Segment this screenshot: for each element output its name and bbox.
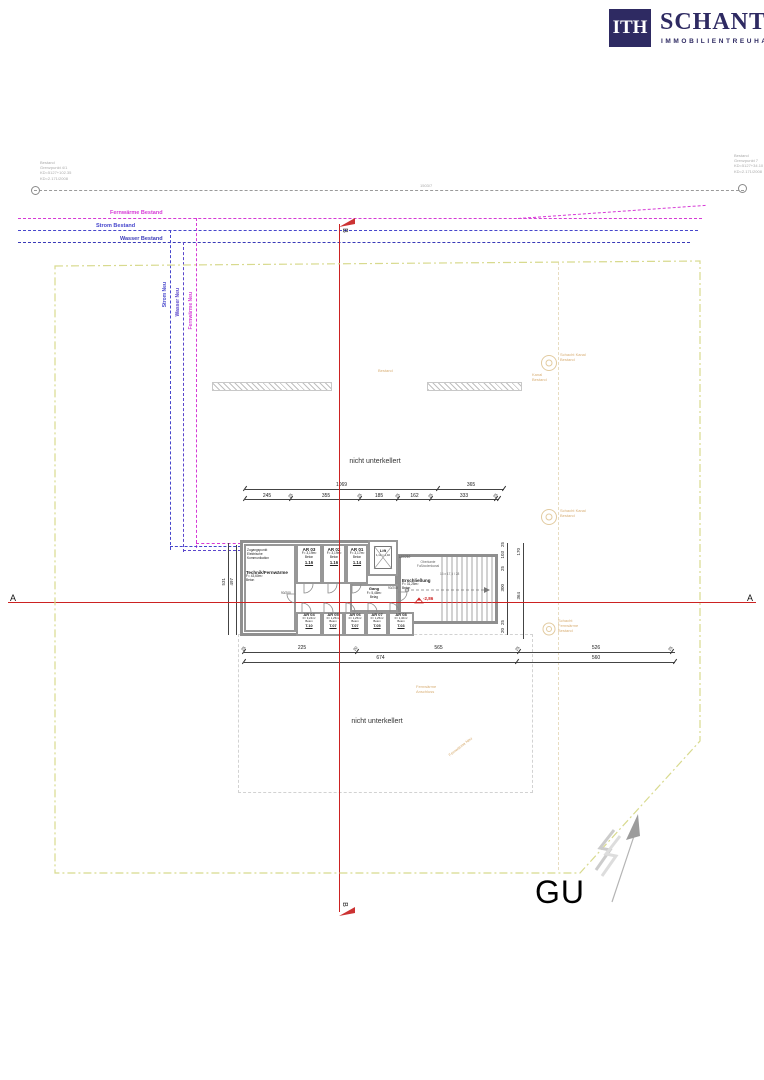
- fernwaerme-bestand-label: Fernwärme Bestand: [110, 210, 163, 216]
- survey-note-left-line: KD=5127+102.35: [40, 170, 71, 175]
- section-label-a-left: A: [10, 593, 16, 603]
- faint-line: Bestand: [558, 628, 578, 633]
- fernwaerme-bestand-branch-line: [518, 205, 706, 219]
- survey-note-right: Bestand Grenzpunkt 7 KD=5127+34.10 KD=2.…: [734, 153, 763, 174]
- faint-note-schacht-2: Schacht Kanal Bestand: [560, 508, 586, 518]
- section-line-b: [339, 224, 340, 912]
- strom-neu-line: [170, 230, 171, 550]
- room-label-technik: Technik/Fernwärme F= 43,60m² Beton: [246, 570, 288, 583]
- dim-line: [245, 499, 499, 500]
- logo-ith-mark: ITH: [609, 9, 651, 47]
- survey-point-right-icon: [738, 184, 747, 193]
- manhole-icon: [546, 360, 552, 366]
- dim-line: [507, 543, 508, 635]
- manhole-icon: [547, 627, 552, 632]
- dim-label: 25: [500, 620, 505, 625]
- faint-line: Bestand: [560, 513, 586, 518]
- room-material: Beton: [402, 587, 431, 591]
- fernwaerme-bestand-line: [18, 218, 702, 219]
- section-flag-top: [339, 218, 355, 227]
- room-label-ar05: AR 05 F= 1,25m² Beton T.07: [322, 613, 344, 628]
- room-unit: 1.14: [346, 560, 368, 565]
- dim-line: [228, 543, 229, 635]
- room-label-ar02: AR 02 F= 3,19m² Beton 1.16: [322, 547, 346, 565]
- dim-label: 185: [362, 493, 396, 499]
- manhole-icon: [542, 510, 557, 525]
- room-unit: T.07: [344, 624, 366, 628]
- fernwaerme-neu-label: Fernwärme Neu: [188, 292, 194, 330]
- dim-label: 565: [360, 645, 517, 651]
- dim-line: [236, 545, 237, 635]
- room-label-ar01: AR 01 F= 3,17m² Beton 1.14: [346, 547, 368, 565]
- lift-dims: 1,10 × 1,40: [368, 554, 398, 557]
- dim-label: 25: [500, 542, 505, 547]
- room-label-ar06: AR 06 F= 1,25m² Beton T.07: [344, 613, 366, 628]
- section-label-b-bottom: B: [341, 902, 348, 907]
- bestand-hatch-strip-left: [212, 382, 332, 391]
- strom-bestand-label: Strom Bestand: [96, 223, 135, 229]
- room-label-ar04: AR 04 F= 3,24m² Beton T.10: [296, 613, 322, 628]
- level-mark-label: -2,86: [423, 596, 433, 601]
- section-label-b-top: B: [341, 228, 348, 233]
- section-line-a: [8, 602, 756, 603]
- kanal-note: Oberkante Fußbodenkanal: [406, 560, 450, 568]
- bestand-hatch-strip-right: [427, 382, 522, 391]
- room-label-ar07: AR 07 F= 1,25m² Beton T.05: [366, 613, 388, 628]
- room-unit: 1.16: [322, 560, 346, 565]
- survey-note-left: Bestand Grenzpunkt 4/1 KD=5127+102.35 KD…: [40, 160, 71, 181]
- survey-note-right-line: KD=2.171/2008: [734, 169, 763, 174]
- room-unit: 1.16: [296, 560, 322, 565]
- faint-note-schacht-1b: Kanal Bestand: [532, 372, 547, 382]
- room-material: Belag: [350, 596, 398, 600]
- fernwaerme-neu-line: [196, 218, 197, 548]
- faint-note-schacht-3: Schacht Fernwärme Bestand: [558, 618, 578, 634]
- dim-label: 364: [516, 592, 521, 600]
- nicht-unterkellert-bottom: nicht unterkellert: [332, 718, 422, 725]
- dim-line: [245, 489, 504, 490]
- strom-neu-connector: [170, 546, 241, 547]
- dim-label: 103: [500, 551, 505, 559]
- logo-name: SCHANTL: [660, 9, 764, 36]
- dim-line: [244, 662, 675, 663]
- wasser-neu-connector: [183, 550, 241, 551]
- survey-note-right-line: KD=5127+34.10: [734, 163, 763, 168]
- wasser-neu-line: [183, 242, 184, 552]
- faint-line: Bestand: [532, 377, 547, 382]
- room-label-lift: Lift 1,10 × 1,40: [368, 549, 398, 557]
- dim-label: 560: [517, 655, 675, 661]
- dim-label: 526: [522, 645, 670, 651]
- strom-neu-label: Strom Neu: [162, 282, 168, 307]
- fernwaerme-neu-connector: [196, 543, 241, 544]
- dim-label: 333: [434, 493, 494, 499]
- room-unit: T.03: [388, 624, 414, 628]
- door-size-technik: 90/200: [281, 592, 291, 596]
- room-unit: T.07: [322, 624, 344, 628]
- parcel-number: 1503/7: [420, 183, 432, 188]
- manhole-icon: [546, 514, 552, 520]
- room-label-erschliessung: Erschließung F= 31,25m² Beton: [402, 578, 431, 591]
- survey-baseline: [34, 190, 744, 191]
- dim-line: [523, 543, 524, 639]
- dim-line: [244, 652, 675, 653]
- dim-label: 162: [400, 493, 429, 499]
- zugang-line: Kommunikation: [247, 557, 269, 561]
- faint-note-strip: Bestand: [378, 368, 393, 373]
- kanal-note-line: Fußbodenkanal: [406, 564, 450, 568]
- room-material: Beton: [246, 579, 288, 583]
- dim-label: 355: [294, 493, 358, 499]
- logo-subtitle: IMMOBILIENTREUHAND: [661, 38, 764, 45]
- wasser-neu-label: Wasser Neu: [175, 288, 181, 316]
- site-plan-canvas: ITH SCHANTL IMMOBILIENTREUHAND Bestand G…: [0, 0, 764, 1080]
- wasser-bestand-line: [18, 242, 690, 243]
- dim-label: 497: [229, 578, 234, 586]
- dim-label: 170: [516, 548, 521, 556]
- gu-zone-label: GU: [535, 874, 585, 911]
- survey-note-left-line: KD=2.171/2008: [40, 176, 71, 181]
- survey-point-left-icon: [31, 186, 40, 195]
- door-size-gang: 90/200: [388, 587, 398, 591]
- dim-label: 365: [438, 482, 504, 488]
- faint-note-schacht-1: Schacht Kanal Bestand: [560, 352, 586, 362]
- kanal-bestand-line: [558, 262, 559, 870]
- strom-bestand-line: [18, 230, 698, 231]
- manhole-icon: [542, 356, 557, 371]
- dim-label: 20: [500, 628, 505, 633]
- section-flag-bottom: [339, 907, 355, 916]
- nicht-unterkellert-top: nicht unterkellert: [330, 458, 420, 465]
- wasser-bestand-label: Wasser Bestand: [120, 236, 163, 242]
- stair-formula: 16 x 17,5 / 28: [440, 572, 459, 576]
- dim-label: 674: [244, 655, 517, 661]
- faint-line: Bestand: [560, 357, 586, 362]
- room-label-ar03: AR 03 F= 3,19m² Beton 1.16: [296, 547, 322, 565]
- dim-label: 245: [245, 493, 289, 499]
- section-label-a-right: A: [747, 593, 753, 603]
- faint-note-fernwaerme: Fernwärme Anschluss: [416, 684, 436, 694]
- north-arrow-icon: [596, 814, 640, 902]
- zugang-note: Zugangspunkt Elektrische Kommunikation: [247, 549, 269, 561]
- dim-label: 300: [500, 584, 505, 592]
- room-label-ar08: AR 08 F= 1,40m² Beton T.03: [388, 613, 414, 628]
- dim-label: 531: [221, 578, 226, 586]
- room-unit: T.05: [366, 624, 388, 628]
- dim-label: 1069: [245, 482, 438, 488]
- faint-line: Anschluss: [416, 689, 436, 694]
- manhole-icon: [543, 623, 555, 635]
- manhole-icons: [542, 356, 557, 636]
- room-unit: T.10: [296, 624, 322, 628]
- dim-label: 25: [500, 566, 505, 571]
